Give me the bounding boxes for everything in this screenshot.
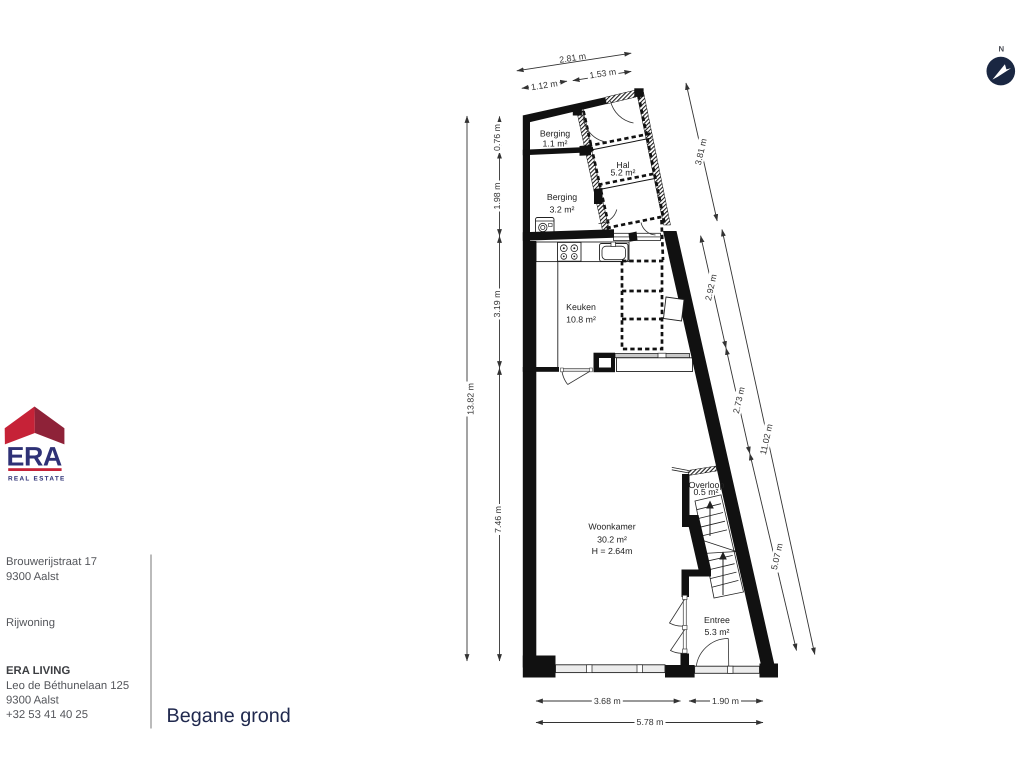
svg-text:Rijwoning: Rijwoning	[6, 617, 55, 629]
svg-text:1.53 m: 1.53 m	[589, 67, 617, 81]
svg-text:9300 Aalst: 9300 Aalst	[6, 695, 60, 707]
svg-text:Brouwerijstraat 17: Brouwerijstraat 17	[6, 556, 97, 568]
svg-text:30.2 m²: 30.2 m²	[597, 535, 627, 545]
svg-text:2.81 m: 2.81 m	[559, 51, 587, 65]
svg-text:0.5 m²: 0.5 m²	[694, 487, 719, 497]
svg-text:5.78 m: 5.78 m	[637, 717, 664, 727]
svg-text:5.07 m: 5.07 m	[769, 542, 785, 570]
svg-text:3.68 m: 3.68 m	[594, 696, 621, 706]
svg-text:1.98 m: 1.98 m	[492, 183, 502, 210]
svg-text:Entree: Entree	[704, 615, 730, 625]
svg-text:1.12 m: 1.12 m	[530, 78, 558, 92]
svg-text:Keuken: Keuken	[566, 302, 596, 312]
svg-text:0.76 m: 0.76 m	[492, 124, 502, 151]
svg-text:ERA: ERA	[7, 442, 62, 472]
svg-text:Leo de Béthunelaan 125: Leo de Béthunelaan 125	[6, 680, 129, 692]
svg-text:1.90 m: 1.90 m	[712, 696, 739, 706]
svg-text:Berging: Berging	[540, 129, 570, 139]
svg-text:N: N	[998, 44, 1004, 53]
svg-text:Begane grond: Begane grond	[167, 705, 291, 727]
svg-text:10.8 m²: 10.8 m²	[566, 315, 596, 325]
svg-text:ERA LIVING: ERA LIVING	[6, 665, 70, 677]
svg-text:5.2 m²: 5.2 m²	[611, 168, 636, 178]
svg-text:13.82 m: 13.82 m	[466, 383, 476, 415]
svg-text:9300 Aalst: 9300 Aalst	[6, 571, 60, 583]
svg-text:3.19 m: 3.19 m	[492, 291, 502, 318]
svg-text:2.73 m: 2.73 m	[731, 386, 747, 414]
svg-text:Berging: Berging	[547, 192, 577, 202]
svg-text:11.02 m: 11.02 m	[758, 423, 775, 456]
svg-text:+32 53 41 40 25: +32 53 41 40 25	[6, 709, 88, 721]
svg-text:5.3 m²: 5.3 m²	[705, 627, 730, 637]
svg-text:REAL ESTATE: REAL ESTATE	[8, 476, 66, 483]
svg-text:2.92 m: 2.92 m	[703, 273, 719, 301]
svg-text:7.46 m: 7.46 m	[493, 506, 503, 533]
svg-text:1.1 m²: 1.1 m²	[543, 139, 568, 149]
svg-text:Woonkamer: Woonkamer	[588, 522, 635, 532]
svg-text:H = 2.64m: H = 2.64m	[592, 546, 633, 556]
svg-text:3.81 m: 3.81 m	[693, 138, 709, 166]
svg-text:3.2 m²: 3.2 m²	[550, 205, 575, 215]
